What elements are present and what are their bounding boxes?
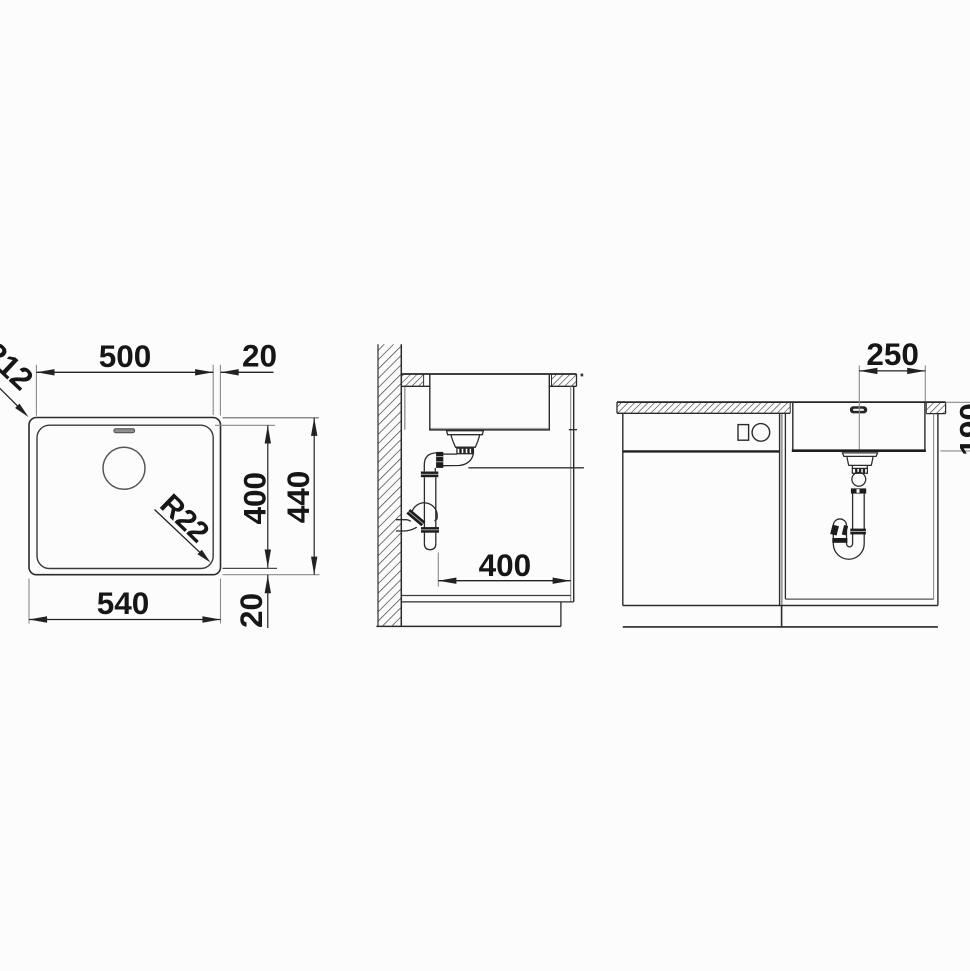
svg-text:500: 500 bbox=[99, 338, 152, 374]
svg-text:400: 400 bbox=[479, 547, 532, 583]
svg-text:190: 190 bbox=[952, 403, 970, 456]
svg-text:212: 212 bbox=[0, 335, 40, 397]
svg-text:400: 400 bbox=[237, 472, 273, 525]
svg-text:250: 250 bbox=[866, 336, 919, 372]
svg-text:540: 540 bbox=[97, 585, 150, 621]
svg-text:440: 440 bbox=[280, 471, 316, 524]
svg-text:20: 20 bbox=[242, 337, 277, 373]
svg-text:20: 20 bbox=[233, 593, 269, 628]
